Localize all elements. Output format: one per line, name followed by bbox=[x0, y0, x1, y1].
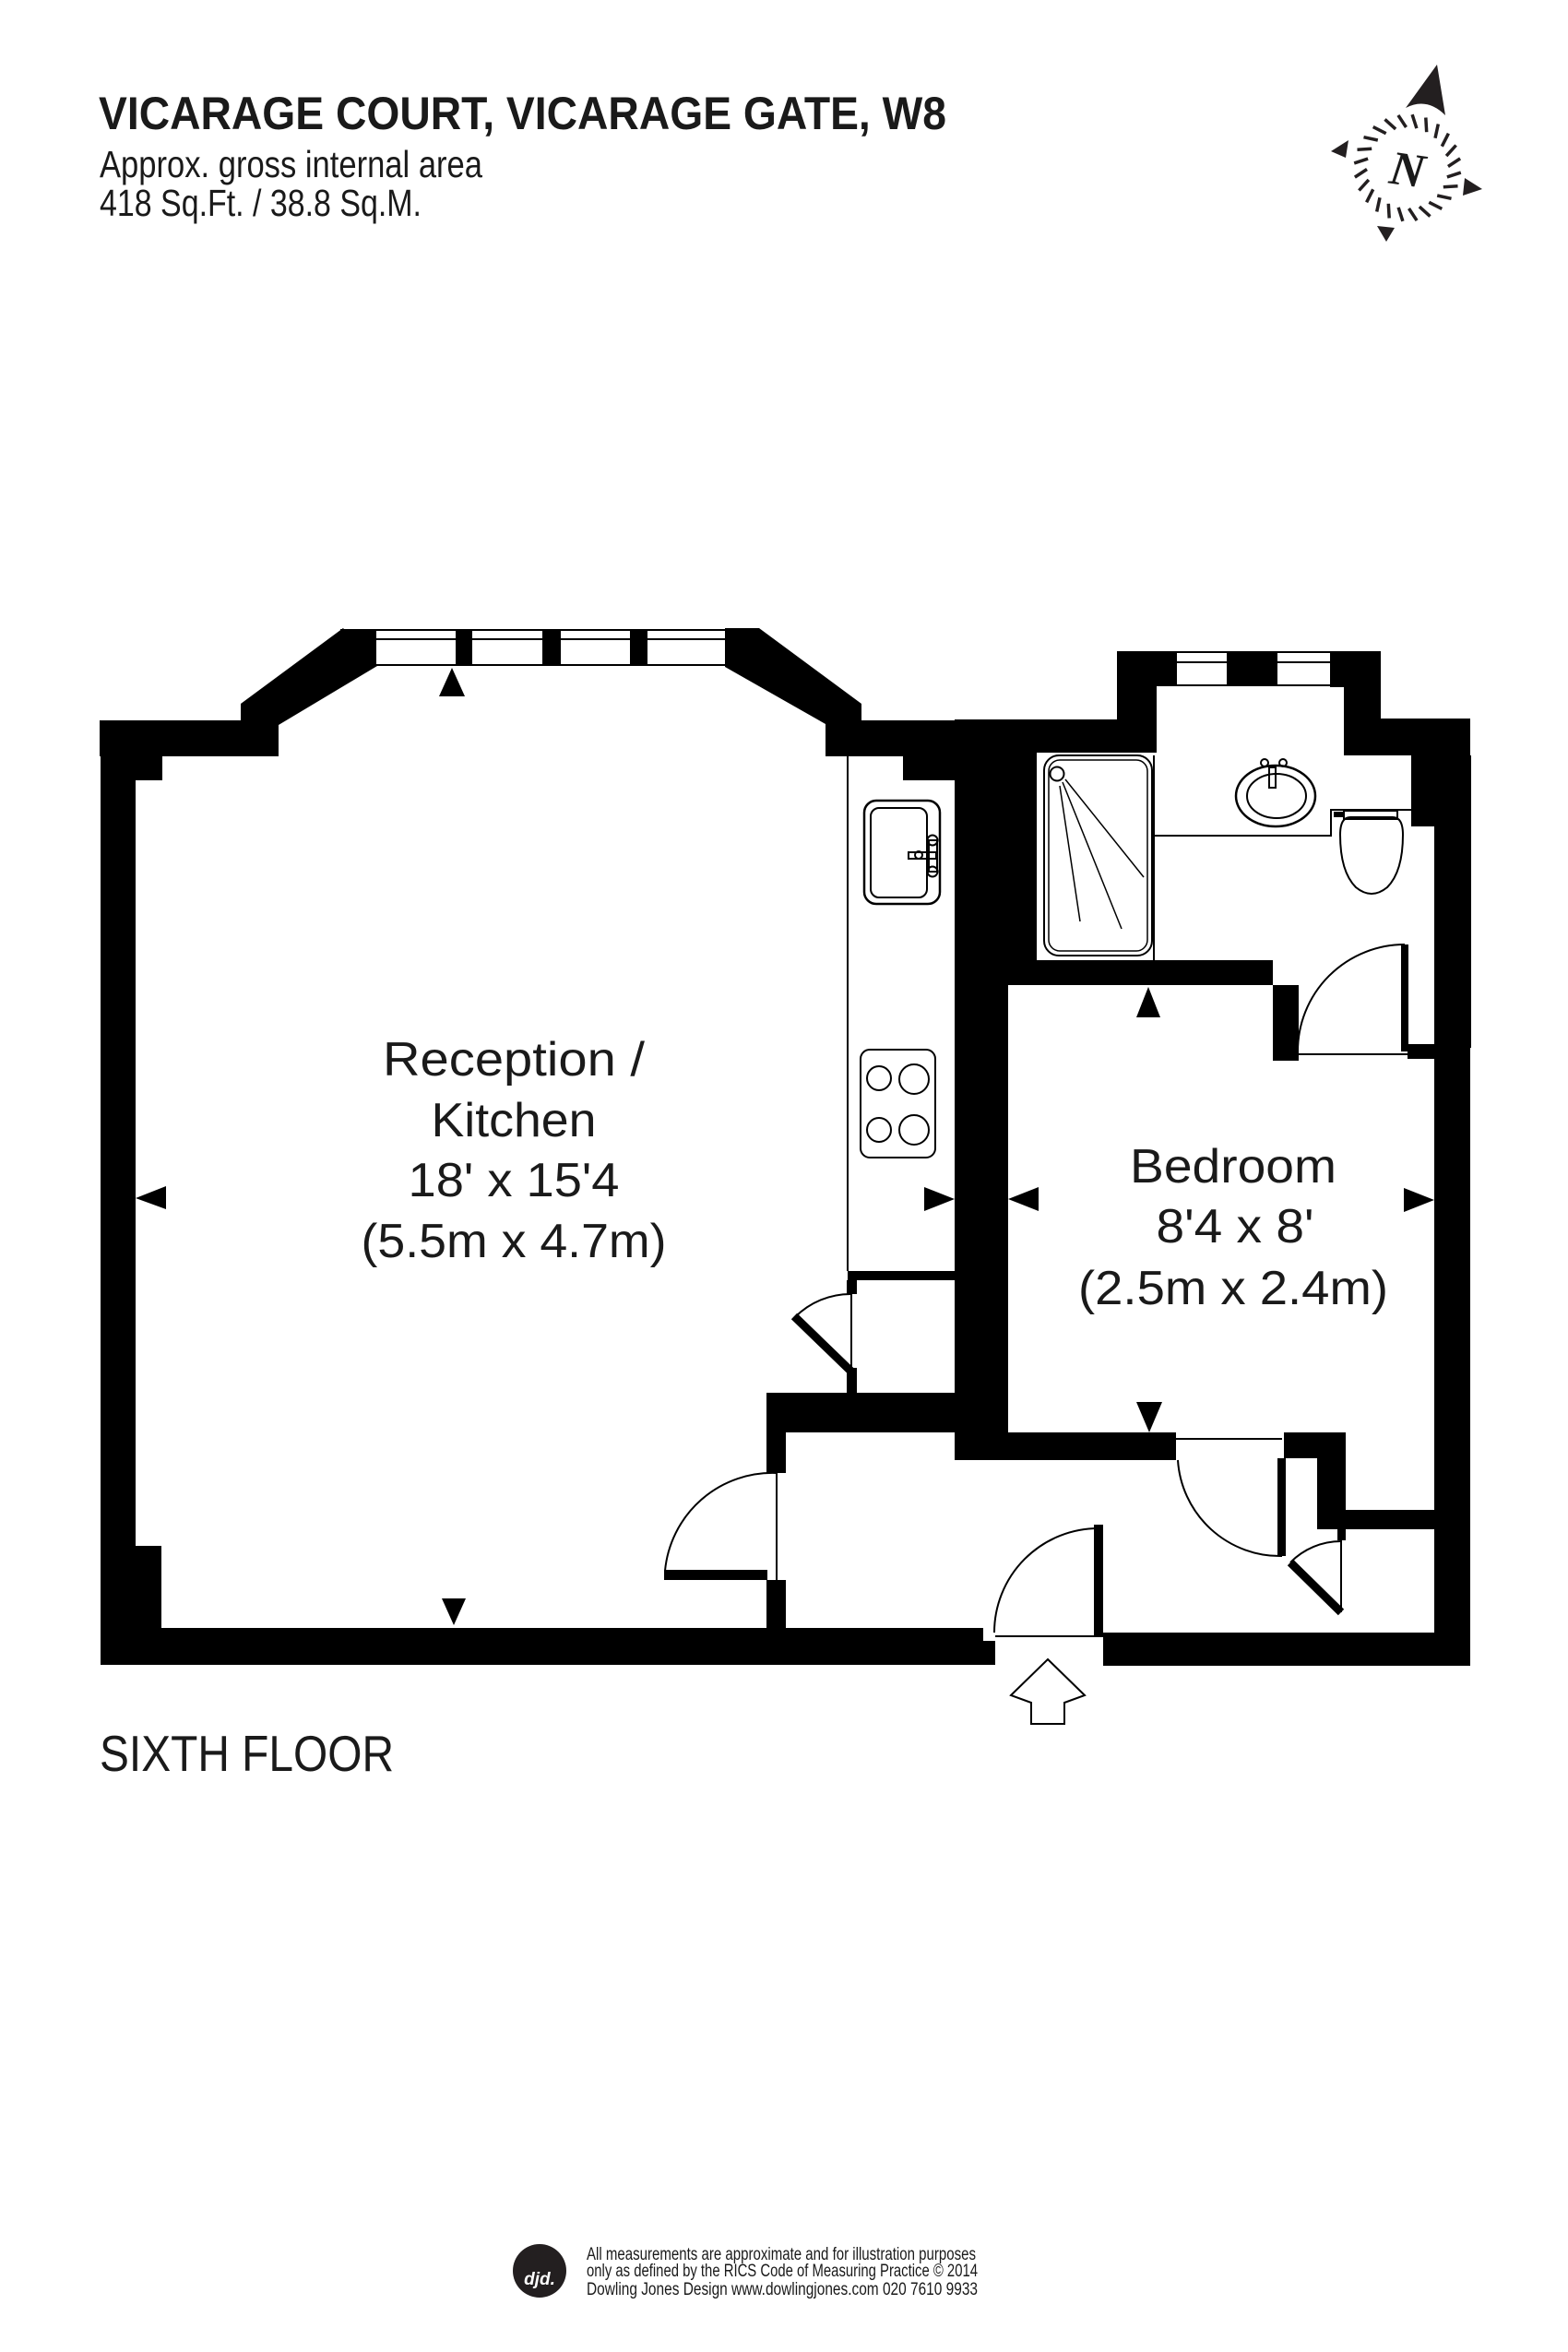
svg-text:(5.5m x 4.7m): (5.5m x 4.7m) bbox=[362, 1215, 667, 1268]
svg-text:only as defined by the RICS Co: only as defined by the RICS Code of Meas… bbox=[587, 2262, 978, 2281]
svg-text:Reception /: Reception / bbox=[383, 1033, 646, 1087]
svg-text:Approx. gross internal area: Approx. gross internal area bbox=[100, 143, 482, 185]
svg-text:418 Sq.Ft. / 38.8 Sq.M.: 418 Sq.Ft. / 38.8 Sq.M. bbox=[100, 182, 422, 224]
svg-text:Dowling Jones Design www.dowli: Dowling Jones Design www.dowlingjones.co… bbox=[587, 2280, 978, 2299]
svg-text:Bedroom: Bedroom bbox=[1130, 1140, 1336, 1194]
svg-text:Kitchen: Kitchen bbox=[432, 1094, 597, 1147]
svg-text:SIXTH FLOOR: SIXTH FLOOR bbox=[100, 1725, 394, 1782]
svg-text:8'4 x 8': 8'4 x 8' bbox=[1157, 1200, 1314, 1253]
svg-text:(2.5m x 2.4m): (2.5m x 2.4m) bbox=[1078, 1262, 1388, 1315]
svg-text:VICARAGE COURT, VICARAGE GATE,: VICARAGE COURT, VICARAGE GATE, W8 bbox=[99, 88, 946, 139]
svg-text:18' x 15'4: 18' x 15'4 bbox=[409, 1154, 620, 1207]
svg-text:djd.: djd. bbox=[524, 2270, 555, 2289]
